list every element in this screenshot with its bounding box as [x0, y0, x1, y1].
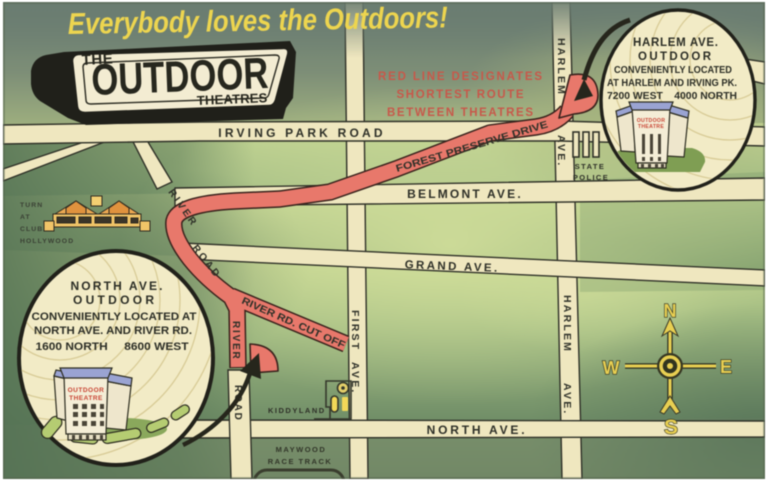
- svg-text:OUTDOOR: OUTDOOR: [73, 293, 155, 307]
- svg-text:CONVENIENTLY LOCATED AT: CONVENIENTLY LOCATED AT: [32, 311, 197, 323]
- svg-text:BETWEEN THEATRES: BETWEEN THEATRES: [387, 107, 533, 119]
- svg-text:AT: AT: [20, 214, 31, 221]
- svg-text:STATE: STATE: [575, 162, 605, 171]
- svg-text:KIDDYLAND: KIDDYLAND: [268, 406, 326, 415]
- svg-text:IRVING PARK ROAD: IRVING PARK ROAD: [218, 126, 385, 140]
- svg-text:S: S: [664, 416, 678, 439]
- svg-text:HARLEM: HARLEM: [561, 295, 573, 353]
- svg-text:AVE.: AVE.: [555, 135, 567, 168]
- svg-text:HARLEM AVE.: HARLEM AVE.: [633, 37, 719, 49]
- svg-text:OUTDOOR: OUTDOOR: [638, 51, 712, 63]
- svg-text:NORTH AVE.: NORTH AVE.: [427, 423, 528, 437]
- svg-text:BELMONT AVE.: BELMONT AVE.: [407, 187, 523, 201]
- svg-text:OUTDOOR: OUTDOOR: [68, 387, 105, 394]
- svg-text:HARLEM: HARLEM: [555, 38, 567, 96]
- svg-text:Everybody loves the Outdoors!: Everybody loves the Outdoors!: [68, 1, 449, 41]
- svg-text:THEATRE: THEATRE: [638, 124, 664, 130]
- svg-text:HOLLYWOOD: HOLLYWOOD: [20, 238, 74, 245]
- svg-text:FIRST: FIRST: [349, 310, 361, 351]
- svg-text:AVE.: AVE.: [561, 383, 573, 416]
- svg-text:NORTH AVE. AND RIVER RD.: NORTH AVE. AND RIVER RD.: [34, 325, 192, 337]
- svg-text:THEATRE: THEATRE: [69, 395, 103, 402]
- svg-text:THEATRES: THEATRES: [197, 90, 268, 108]
- svg-text:RIVER: RIVER: [230, 321, 241, 361]
- svg-text:7200 WEST 4000 NORTH: 7200 WEST 4000 NORTH: [607, 90, 737, 102]
- svg-text:W: W: [603, 358, 620, 378]
- svg-text:CLUB: CLUB: [20, 226, 43, 233]
- svg-text:AT HARLEM AND IRVING PK.: AT HARLEM AND IRVING PK.: [607, 77, 737, 89]
- svg-text:N: N: [664, 301, 677, 321]
- svg-text:NORTH AVE.: NORTH AVE.: [71, 279, 164, 293]
- svg-text:RACE TRACK: RACE TRACK: [268, 457, 333, 466]
- svg-text:TURN: TURN: [20, 202, 43, 209]
- svg-text:SHORTEST ROUTE: SHORTEST ROUTE: [397, 89, 524, 101]
- svg-text:MAYWOOD: MAYWOOD: [276, 445, 327, 454]
- svg-text:1600 NORTH 8600 WEST: 1600 NORTH 8600 WEST: [36, 341, 189, 353]
- svg-text:E: E: [720, 357, 732, 377]
- svg-text:CONVENIENTLY LOCATED: CONVENIENTLY LOCATED: [614, 64, 732, 76]
- svg-text:POLICE: POLICE: [573, 173, 609, 182]
